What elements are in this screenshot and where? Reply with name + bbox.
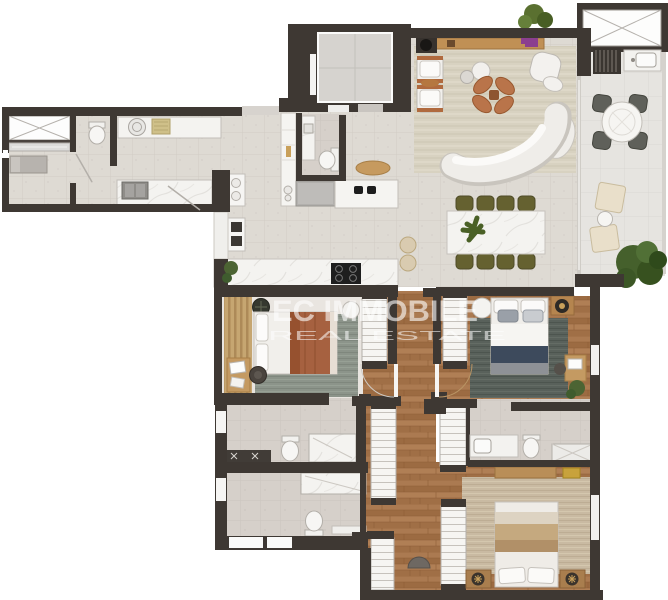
svg-text:REAL ESTATE: REAL ESTATE — [268, 328, 507, 343]
svg-text:EC IMMOBILE: EC IMMOBILE — [272, 295, 478, 328]
